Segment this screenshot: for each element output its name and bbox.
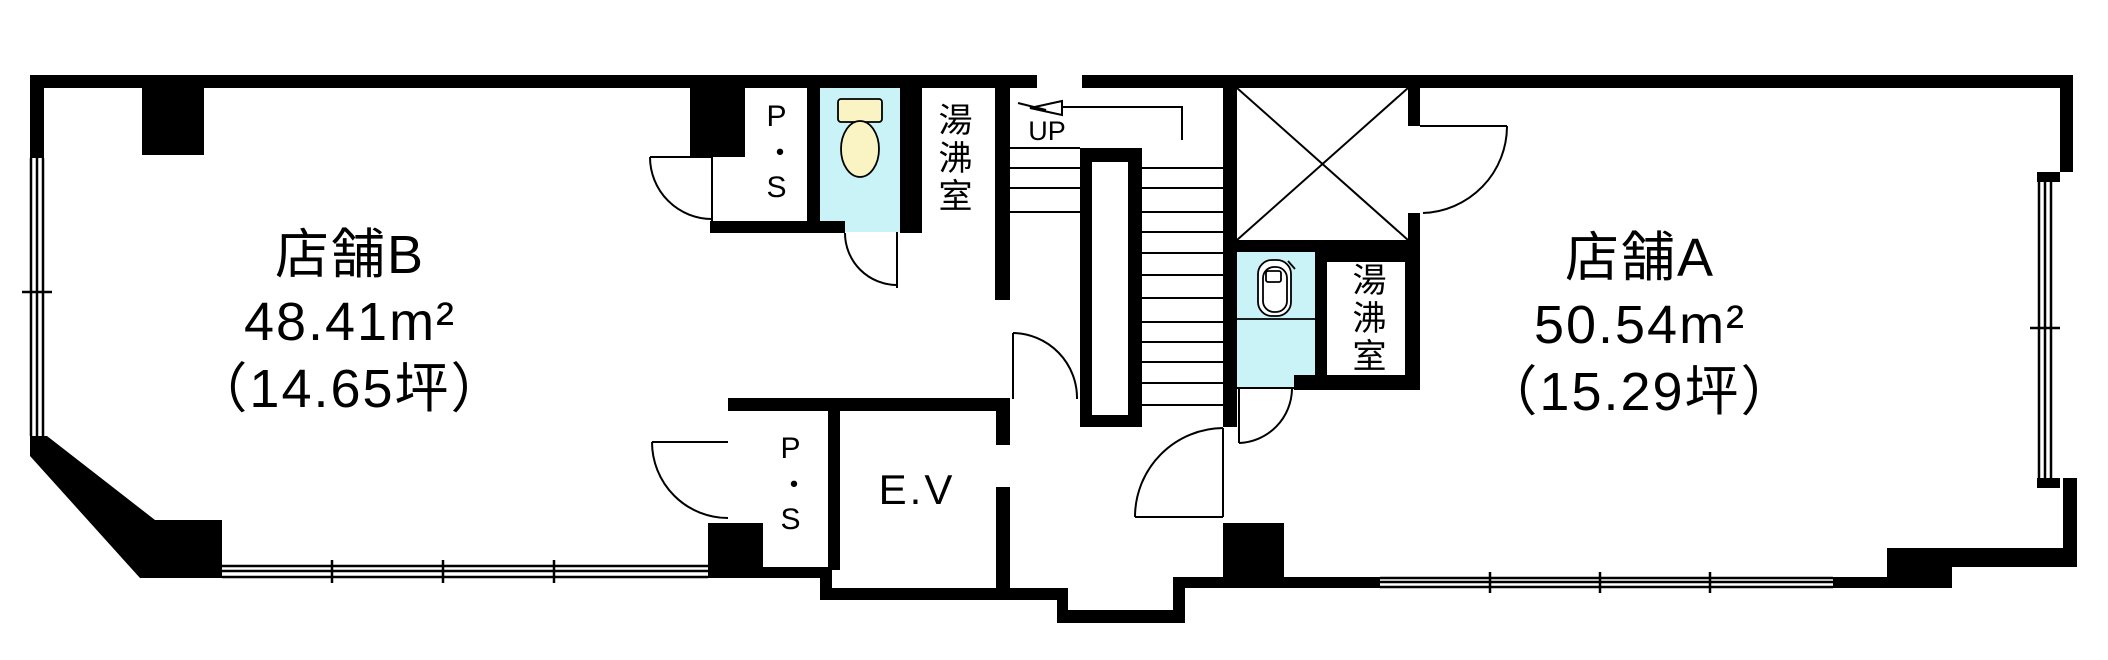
vestibule-right-wall [1173, 577, 1185, 612]
wall-toilet-block-bottom [710, 221, 845, 233]
right-wall-top [2060, 75, 2073, 172]
stair-core-right [1128, 148, 1142, 415]
door-stair-hall [1013, 333, 1077, 399]
wall-ps-elevator-divider [828, 411, 840, 570]
toilet-bowl [841, 121, 879, 177]
wall-stub-ps-top [690, 88, 745, 157]
door-toilet [845, 232, 897, 288]
kitchenette-right-wall [1405, 252, 1420, 390]
kitchenette-left-label: 湯沸室 [926, 98, 978, 220]
chamfer-wall-bottom-left [30, 436, 222, 578]
window-bottom-shop-a [1380, 572, 1833, 593]
column-bottom-center [708, 523, 763, 578]
pipe-space-bottom-label: P・S [760, 422, 820, 550]
floor-plan: 店舗B 48.41m² （14.65坪） 店舗A 50.54m² （15.29坪… [0, 0, 2108, 660]
bottom-wall-hall [1185, 577, 1223, 588]
kitchenette-right-label: 湯沸室 [1340, 258, 1392, 380]
elevator-right-wall-upper [996, 411, 1010, 445]
right-wall-tick-upper [2037, 172, 2060, 182]
elevator-block-top-wall [728, 398, 1010, 411]
wall-ps-toilet-divider [807, 88, 820, 233]
column-top-left [142, 87, 204, 155]
shop-b-area-sqm: 48.41m² [150, 289, 550, 356]
door-shaft-shop-a [1420, 126, 1507, 213]
toilet-icon [838, 99, 882, 177]
shaft-right-wall-upper [1408, 88, 1420, 126]
elevator-right-wall-lower [996, 487, 1010, 600]
bottom-wall-seg-center-right [1284, 577, 1380, 588]
stair-treads [1010, 148, 1223, 405]
shop-b-label: 店舗B 48.41m² （14.65坪） [150, 222, 550, 423]
left-wall-corner [30, 75, 44, 158]
shop-b-name: 店舗B [150, 222, 550, 289]
door-shop-b-service [650, 157, 712, 222]
elevator-bottom-wall [820, 588, 1068, 600]
stairs-up-label: UP [1012, 116, 1082, 147]
elevator-label: E.V [852, 466, 982, 514]
door-hall-shop-a [1135, 428, 1223, 517]
stair-core-left [1080, 148, 1092, 415]
vestibule-left-wall [1057, 600, 1068, 612]
shop-a-label: 店舗A 50.54m² （15.29坪） [1440, 225, 1840, 426]
sink-faucet [1266, 271, 1281, 282]
shaft-x-brace [1237, 88, 1408, 240]
column-bottom-right [1887, 548, 1952, 588]
wall-kitchenette-divider [1315, 250, 1327, 390]
window-bottom-shop-b [222, 560, 708, 583]
pipe-space-top-label: P・S [746, 90, 806, 218]
top-wall-left [32, 75, 1037, 88]
window-left [22, 158, 52, 436]
toilet-tank [838, 99, 882, 122]
stairwell-right-wall [1223, 88, 1237, 427]
bottom-wall-seg-right [1833, 577, 1887, 588]
shop-a-area-sqm: 50.54m² [1440, 292, 1840, 359]
shop-a-area-tsubo: （15.29坪） [1440, 359, 1840, 426]
wall-toilet-right [900, 88, 922, 233]
vestibule-bottom-wall [1057, 610, 1185, 623]
stair-core-bottom [1080, 415, 1142, 427]
bottom-wall-far-right [1952, 548, 2077, 567]
shaft-bottom-wall [1237, 240, 1420, 252]
right-wall-tick-lower [2037, 478, 2060, 488]
shop-a-name: 店舗A [1440, 225, 1840, 292]
door-ps-lower [652, 442, 728, 518]
door-kitchenette [1237, 388, 1295, 443]
window-right [2030, 182, 2060, 478]
column-hall-right [1223, 523, 1284, 588]
stairwell-left-wall [995, 88, 1010, 300]
shop-b-area-tsubo: （14.65坪） [150, 356, 550, 423]
top-wall-right [1082, 75, 2073, 88]
